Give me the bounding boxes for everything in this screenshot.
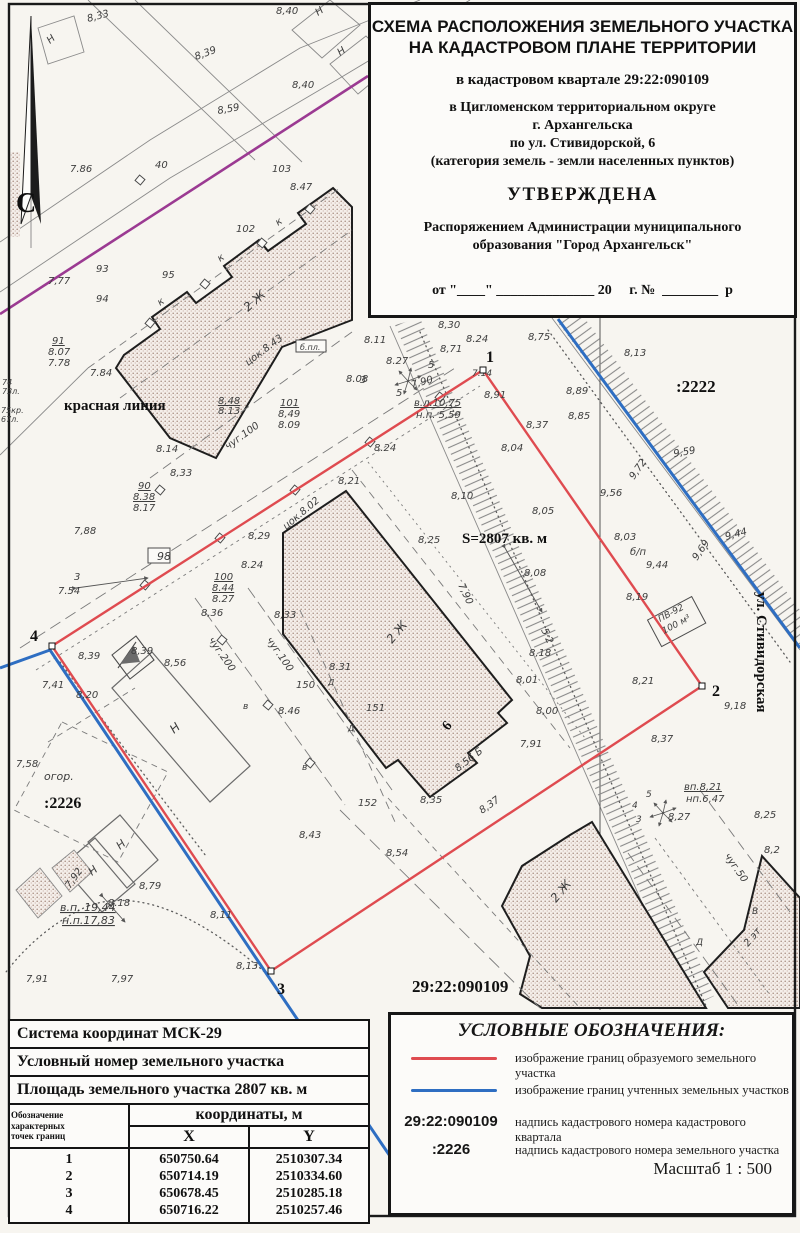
map-label: 8.24 [466,334,488,345]
map-label: 8,35 [420,795,442,806]
map-label: 8,04 [501,443,523,454]
boundary-point-number: 4 [30,628,38,645]
land-category-line: (категория земель - земли населенных пун… [371,153,794,171]
map-label: 7,91 [26,974,48,985]
map-label: 8,2 [764,845,780,856]
legend-item: изображение границ учтенных земельных уч… [391,1081,792,1103]
map-label: 8.17 [133,503,156,514]
map-label: красная линия [64,398,166,414]
district-line1: в Цигломенском территориальном округе [371,99,794,117]
coordinates-header: координаты, м [129,1104,369,1126]
point-numbers-cell: 1 2 3 4 [9,1148,129,1223]
map-label: 7.54 [58,586,80,597]
boundary-point-number: 2 [712,683,720,700]
map-label: 8,91 [484,390,506,401]
map-label: 8,25 [418,535,440,546]
map-label: 8,10 [451,491,473,502]
boundary-point-number: 3 [277,981,285,998]
map-label: 8,89 [566,386,588,397]
map-label: 8,40 [276,6,298,17]
map-label: 8.27 [386,356,409,367]
map-label: 8,39 [78,651,100,662]
map-label: 93 [96,264,109,275]
map-label: Д [327,678,334,687]
map-label: 67л. [1,415,19,424]
map-label: 7.84 [90,368,112,379]
map-label: 90 [138,481,151,492]
cadastral-quarter-line: в кадастровом квартале 29:22:090109 [371,72,794,89]
map-label: 95 [162,270,175,281]
map-label: 8,43 [299,830,321,841]
map-label: 29:22:090109 [412,977,508,996]
legend-item-label: изображение границ образуемого земельног… [515,1051,792,1081]
map-label: 8,05 [532,506,554,517]
red-line-sample [411,1057,497,1060]
scheme-title-line1: СХЕМА РАСПОЛОЖЕНИЯ ЗЕМЕЛЬНОГО УЧАСТКА [371,16,794,37]
legend-item: изображение границ образуемого земельног… [391,1049,792,1071]
map-label: 8.27 [212,594,235,605]
map-label: 8.11 [364,335,386,346]
map-label: 8,21 [632,676,654,687]
map-label: 7.78 [48,358,70,369]
map-label: 7,77 [48,276,71,287]
map-label: 8,40 [292,80,314,91]
map-label: 8.14 [156,444,178,455]
map-label: 8.18 [108,898,130,909]
map-label: 8,71 [440,344,462,355]
map-label: н.п. 5,59 [416,410,461,421]
map-label: 8,21 [338,476,360,487]
map-label: 7,88 [74,526,96,537]
map-label: 7,58 [16,759,38,770]
title-block: СХЕМА РАСПОЛОЖЕНИЯ ЗЕМЕЛЬНОГО УЧАСТКА НА… [368,2,797,318]
map-label: 8,49 [278,409,300,420]
map-label: ул. Стивидорская [753,592,769,713]
legend-symbol-text: :2226 [395,1141,507,1158]
map-label: в [243,702,248,712]
map-label: Д [347,724,354,733]
coord-system-row: Система координат МСК-29 [9,1020,369,1048]
legend-item-label: изображение границ учтенных земельных уч… [515,1083,789,1098]
map-label: в.л.10,75 [414,398,461,409]
map-label: 8,25 [754,810,776,821]
map-label: огор. [44,770,74,783]
map-label: 8,36 [201,608,223,619]
legend-item-label: надпись кадастрового номера земельного у… [515,1143,779,1158]
map-label: 8,13 [624,348,646,359]
map-label: 8,27 [668,812,691,823]
map-label: нп.6,47 [686,794,725,805]
map-label: 8.09 [278,420,300,431]
map-label: 3 [74,572,80,583]
map-label: 8,33 [170,468,192,479]
legend: УСЛОВНЫЕ ОБОЗНАЧЕНИЯ: изображение границ… [388,1012,795,1216]
map-label: С [16,188,36,219]
map-label: 8,08 [524,568,546,579]
map-label: 8.24 [374,443,396,454]
map-label: 8,79 [139,881,161,892]
map-label: 8.38 [133,492,155,503]
map-label: 8.07 [48,347,71,358]
legend-symbol-text: 29:22:090109 [395,1113,507,1130]
map-label: 8,13 [236,961,258,972]
map-label: 8.31 [329,662,351,673]
map-label: 100 [214,572,233,583]
map-label: 7.86 [70,164,92,175]
legend-title: УСЛОВНЫЕ ОБОЗНАЧЕНИЯ: [391,1020,792,1042]
map-label: 8,54 [386,848,408,859]
map-label: 9,56 [600,488,622,499]
map-label: 8,01 [516,675,538,686]
map-label: 8.44 [212,583,234,594]
map-label: 9,18 [724,701,746,712]
map-label: 74 [2,378,12,387]
x-column-header: X [129,1126,249,1148]
district-line3: по ул. Стивидорской, 6 [371,135,794,153]
map-label: В [752,907,758,917]
map-label: 8.47 [290,182,313,193]
map-label: 98 [157,550,171,563]
map-label: S=2807 кв. м [462,531,547,547]
map-label: 8,03 [614,532,636,543]
area-row: Площадь земельного участка 2807 кв. м [9,1076,369,1104]
map-label: 8,56 [164,658,186,669]
map-label: 8,39 [131,646,153,657]
map-label: Д [695,938,703,948]
map-label: 8,75 [528,332,550,343]
boundary-point-number: 1 [486,349,494,366]
map-label: 8,11 [210,910,232,921]
map-label: б.пл. [300,343,320,352]
blue-line-sample [411,1089,497,1092]
coordinates-table: Система координат МСК-29 Условный номер … [8,1019,370,1224]
map-label: 9,44 [646,560,668,571]
boundary-point-marker [480,367,486,373]
map-label: 8.24 [241,560,263,571]
map-label: н.п.17,83 [62,914,115,927]
order-line1: Распоряжением Администрации муниципально… [371,219,794,237]
order-line2: образования "Город Архангельск" [371,237,794,255]
map-label: 5 [428,360,434,371]
date-number-line: от "____" ______________ 20 г. № _______… [371,283,794,299]
cadastral-scheme-page: С8,33НН8,408,398,598,40Н7.86401038.47102… [0,0,800,1233]
map-label: 4 [632,801,638,811]
map-label: 7,91 [520,739,542,750]
map-label: в [302,763,307,773]
map-label: 8.46 [278,706,300,717]
map-label: 8,20 [76,690,98,701]
map-label: 40 [155,160,168,171]
conditional-number-row: Условный номер земельного участка [9,1048,369,1076]
map-label: вп.8,21 [684,782,722,793]
boundary-point-marker [699,683,705,689]
point-designation-header: Обозначение характерных точек границ [9,1104,129,1148]
x-values-cell: 650750.64 650714.19 650678.45 650716.22 [129,1148,249,1223]
map-label: :2222 [676,377,716,396]
map-label: 8,85 [568,411,590,422]
map-label: 8,29 [248,531,270,542]
map-label: 103 [272,164,291,175]
map-label: 7,41 [42,680,64,691]
map-label: 8,19 [626,592,648,603]
map-label: 3 [636,815,642,825]
map-label: 150 [296,680,315,691]
map-label: 152 [358,798,377,809]
map-label: 8,00 [536,706,558,717]
scheme-title-line2: НА КАДАСТРОВОМ ПЛАНЕ ТЕРРИТОРИИ [371,37,794,58]
map-label: 8,37 [526,420,549,431]
map-label: 8,18 [529,648,551,659]
map-label: 5 [646,790,652,800]
map-label: 94 [96,294,109,305]
map-label: 101 [280,398,299,409]
map-label: 8,30 [438,320,460,331]
legend-item: 29:22:090109надпись кадастрового номера … [391,1113,792,1135]
coordinates-data-row: 1 2 3 4 650750.64 650714.19 650678.45 65… [9,1148,369,1223]
map-label: 8.08 [346,374,368,385]
map-label: 5 [396,388,402,399]
map-label: 151 [366,703,385,714]
y-values-cell: 2510307.34 2510334.60 2510285.18 2510257… [249,1148,369,1223]
map-scale: Масштаб 1 : 500 [653,1159,772,1179]
map-label: 7,97 [111,974,134,985]
map-label: 91 [52,336,65,347]
map-label: 73л. [2,387,20,396]
boundary-point-marker [49,643,55,649]
map-label: :2226 [44,795,81,812]
map-label: б/п [630,546,647,558]
y-column-header: Y [249,1126,369,1148]
boundary-point-marker [268,968,274,974]
map-label: 8,33 [274,610,296,621]
map-label: 75кр. [1,406,24,415]
map-label: 102 [236,224,255,235]
map-label: 8,37 [651,734,674,745]
district-line2: г. Архангельска [371,117,794,135]
map-label: 8.13 [218,406,240,417]
approved-label: УТВЕРЖДЕНА [371,184,794,206]
